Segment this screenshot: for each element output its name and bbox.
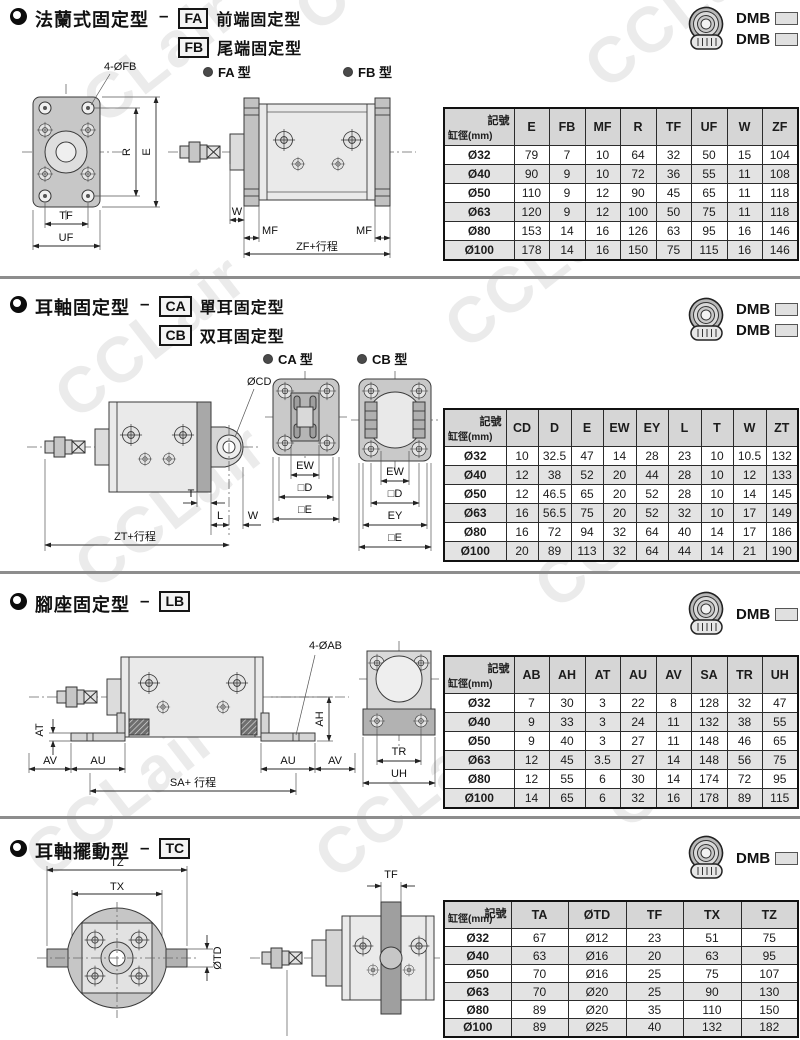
svg-text:□D: □D	[388, 488, 403, 500]
model-code: DMBCB	[736, 322, 800, 339]
col-header-EY: EY	[636, 409, 668, 447]
model-code: DMBLB	[736, 606, 800, 623]
value-cell: 9	[549, 184, 585, 203]
value-cell: 113	[571, 542, 603, 561]
value-cell: 110	[514, 184, 549, 203]
value-cell: 16	[506, 523, 538, 542]
bore-blank-box	[775, 852, 798, 865]
table-row: Ø10014656321617889115	[444, 789, 798, 808]
value-cell: 12	[585, 184, 620, 203]
value-cell: 30	[620, 770, 656, 789]
col-header-W: W	[727, 108, 762, 146]
model-code: DMBFB	[736, 31, 800, 48]
value-cell: 47	[762, 694, 798, 713]
col-header-UH: UH	[762, 656, 798, 694]
value-cell: 33	[549, 713, 585, 732]
section-title: 腳座固定型	[35, 591, 130, 617]
svg-text:AH: AH	[314, 711, 326, 726]
value-cell: 24	[620, 713, 656, 732]
table-row: Ø501246.5652052281014145	[444, 485, 798, 504]
value-cell: 100	[620, 203, 656, 222]
value-cell: 12	[514, 770, 549, 789]
col-header-CD: CD	[506, 409, 538, 447]
value-cell: 118	[762, 203, 798, 222]
bore-cell: Ø63	[444, 751, 514, 770]
svg-text:W: W	[248, 510, 259, 522]
section-flange-header: 法蘭式固定型 – FA 前端固定型 FB 尾端固定型	[10, 6, 302, 59]
bore-cell: Ø40	[444, 713, 514, 732]
value-cell: 182	[741, 1019, 798, 1037]
value-cell: 65	[549, 789, 585, 808]
svg-text:FA 型: FA 型	[218, 65, 251, 80]
type-code-box: LB	[159, 591, 190, 612]
table-row: Ø10020891133264441421190	[444, 542, 798, 561]
bore-cell: Ø32	[444, 694, 514, 713]
bore-blank-box	[775, 303, 798, 316]
table-row: Ø801531416126639516146	[444, 222, 798, 241]
value-cell: 32	[603, 542, 636, 561]
value-cell: 12	[506, 466, 538, 485]
section-divider	[0, 571, 800, 574]
value-cell: 148	[691, 751, 727, 770]
value-cell: 3.5	[585, 751, 620, 770]
title-dash: –	[140, 294, 149, 314]
value-cell: 44	[636, 466, 668, 485]
col-header-TZ: TZ	[741, 901, 798, 929]
section-bullet-icon	[10, 296, 27, 313]
value-cell: 6	[585, 789, 620, 808]
value-cell: 28	[668, 485, 701, 504]
section-divider	[0, 816, 800, 819]
value-cell: 45	[656, 184, 691, 203]
model-code: DMBTC	[736, 850, 800, 867]
table-corner-cell: 記號缸徑(mm)	[444, 108, 514, 146]
section-bullet-icon	[10, 8, 27, 25]
table-row: Ø63120912100507511118	[444, 203, 798, 222]
value-cell: 89	[511, 1001, 568, 1019]
value-cell: 10	[506, 447, 538, 466]
svg-text:TX: TX	[110, 881, 125, 893]
value-cell: 79	[514, 146, 549, 165]
value-cell: 89	[511, 1019, 568, 1037]
value-cell: 27	[620, 732, 656, 751]
value-cell: 118	[762, 184, 798, 203]
value-cell: 20	[603, 504, 636, 523]
value-cell: 16	[585, 241, 620, 260]
value-cell: 75	[571, 504, 603, 523]
bore-cell: Ø100	[444, 789, 514, 808]
value-cell: 12	[514, 751, 549, 770]
value-cell: 72	[727, 770, 762, 789]
value-cell: 56	[727, 751, 762, 770]
value-cell: 16	[727, 241, 762, 260]
table-row: Ø10017814161507511516146	[444, 241, 798, 260]
corner-label-top: 記號	[488, 660, 510, 676]
value-cell: 130	[741, 983, 798, 1001]
section-title: 耳軸固定型	[35, 294, 130, 320]
svg-text:ZT+行程: ZT+行程	[114, 530, 156, 543]
value-cell: 153	[514, 222, 549, 241]
type-code-box: CB	[159, 325, 191, 346]
table-row: Ø801255630141747295	[444, 770, 798, 789]
value-cell: 38	[727, 713, 762, 732]
value-cell: 20	[603, 466, 636, 485]
value-cell: 148	[691, 732, 727, 751]
svg-text:R: R	[121, 148, 133, 156]
col-header-TX: TX	[683, 901, 741, 929]
value-cell: 11	[727, 165, 762, 184]
svg-text:AU: AU	[90, 755, 105, 767]
value-cell: 40	[549, 732, 585, 751]
model-code-block: DMBCA DMBCB	[684, 296, 800, 344]
value-cell: 174	[691, 770, 727, 789]
col-header-TF: TF	[656, 108, 691, 146]
value-cell: 67	[511, 929, 568, 947]
table-corner-cell: 記號缸徑(mm)	[444, 409, 506, 447]
value-cell: 115	[762, 789, 798, 808]
table-row: Ø3273032281283247	[444, 694, 798, 713]
value-cell: 64	[636, 523, 668, 542]
value-cell: 11	[727, 184, 762, 203]
table-row: Ø327971064325015104	[444, 146, 798, 165]
model-code-block: DMBFA DMBFB	[684, 5, 800, 53]
type-code-box: FA	[178, 8, 208, 29]
foot-dimension-table: 記號缸徑(mm)ABAHATAUAVSATRUHØ327303228128324…	[443, 655, 797, 809]
table-row: Ø3267Ø12235175	[444, 929, 798, 947]
table-row: Ø5070Ø162575107	[444, 965, 798, 983]
col-header-MF: MF	[585, 108, 620, 146]
svg-text:□E: □E	[388, 532, 402, 544]
model-code: DMBFA	[736, 10, 800, 27]
table-row: Ø40933324111323855	[444, 713, 798, 732]
value-cell: 72	[538, 523, 571, 542]
bore-cell: Ø50	[444, 732, 514, 751]
value-cell: 20	[506, 542, 538, 561]
value-cell: 178	[514, 241, 549, 260]
value-cell: 32	[727, 694, 762, 713]
flange-mounting-diagram: FA 型 FB 型 4-ØFB R E TF UF	[18, 58, 438, 265]
value-cell: 52	[571, 466, 603, 485]
value-cell: 10	[701, 504, 733, 523]
value-cell: 7	[514, 694, 549, 713]
value-cell: 64	[636, 542, 668, 561]
value-cell: 120	[514, 203, 549, 222]
value-cell: 55	[549, 770, 585, 789]
value-cell: 25	[626, 965, 683, 983]
col-header-TA: TA	[511, 901, 568, 929]
svg-text:AV: AV	[328, 755, 343, 767]
section-bullet-icon	[10, 840, 27, 857]
section-foot-header: 腳座固定型 – LB	[10, 591, 198, 617]
bore-cell: Ø32	[444, 929, 511, 947]
value-cell: 55	[762, 713, 798, 732]
value-cell: 45	[549, 751, 585, 770]
value-cell: 10	[701, 466, 733, 485]
col-header-ZT: ZT	[766, 409, 798, 447]
table-corner-cell: 記號缸徑(mm)	[444, 901, 511, 929]
value-cell: 90	[514, 165, 549, 184]
col-header-EW: EW	[603, 409, 636, 447]
value-cell: 47	[571, 447, 603, 466]
bore-cell: Ø40	[444, 466, 506, 485]
value-cell: 14	[656, 770, 691, 789]
bore-cell: Ø63	[444, 504, 506, 523]
table-row: Ø8089Ø2035110150	[444, 1001, 798, 1019]
value-cell: 40	[668, 523, 701, 542]
value-cell: 38	[538, 466, 571, 485]
svg-text:TF: TF	[59, 210, 73, 222]
bore-cell: Ø100	[444, 241, 514, 260]
col-header-AU: AU	[620, 656, 656, 694]
table-row: Ø10089Ø2540132182	[444, 1019, 798, 1037]
model-code-block: DMBLB	[684, 590, 800, 638]
value-cell: 25	[626, 983, 683, 1001]
bore-cell: Ø32	[444, 146, 514, 165]
bore-cell: Ø32	[444, 447, 506, 466]
bore-cell: Ø50	[444, 184, 514, 203]
value-cell: 65	[762, 732, 798, 751]
clevis-dimension-table-grid: 記號缸徑(mm)CDDEEWEYLTWZTØ321032.54714282310…	[443, 408, 799, 562]
svg-text:L: L	[217, 510, 223, 522]
svg-text:ØCD: ØCD	[247, 376, 272, 388]
value-cell: 9	[514, 732, 549, 751]
value-cell: 75	[683, 965, 741, 983]
table-row: Ø401238522044281012133	[444, 466, 798, 485]
value-cell: 8	[656, 694, 691, 713]
value-cell: 14	[733, 485, 766, 504]
svg-text:4-ØAB: 4-ØAB	[309, 640, 342, 652]
value-cell: 132	[683, 1019, 741, 1037]
value-cell: 89	[727, 789, 762, 808]
value-cell: 89	[538, 542, 571, 561]
value-cell: 128	[691, 694, 727, 713]
svg-text:CA 型: CA 型	[278, 352, 313, 367]
col-header-E: E	[571, 409, 603, 447]
table-row: Ø6312453.527141485675	[444, 751, 798, 770]
value-cell: Ø25	[568, 1019, 626, 1037]
value-cell: 94	[571, 523, 603, 542]
title-dash: –	[140, 591, 149, 611]
col-header-AT: AT	[585, 656, 620, 694]
svg-text:SA+ 行程: SA+ 行程	[170, 776, 216, 789]
value-cell: Ø16	[568, 965, 626, 983]
value-cell: 50	[656, 203, 691, 222]
table-row: Ø801672943264401417186	[444, 523, 798, 542]
bore-cell: Ø63	[444, 983, 511, 1001]
value-cell: 132	[766, 447, 798, 466]
value-cell: 14	[701, 542, 733, 561]
bore-cell: Ø80	[444, 523, 506, 542]
foot-dimension-table-grid: 記號缸徑(mm)ABAHATAUAVSATRUHØ327303228128324…	[443, 655, 799, 809]
value-cell: 51	[683, 929, 741, 947]
col-header-AB: AB	[514, 656, 549, 694]
value-cell: 150	[620, 241, 656, 260]
type-desc: 單耳固定型	[200, 294, 285, 318]
table-row: Ø321032.5471428231010.5132	[444, 447, 798, 466]
section-divider	[0, 276, 800, 279]
value-cell: 32	[656, 146, 691, 165]
value-cell: 70	[511, 983, 568, 1001]
svg-text:EW: EW	[296, 460, 314, 472]
value-cell: 10	[701, 447, 733, 466]
value-cell: 7	[549, 146, 585, 165]
value-cell: 46.5	[538, 485, 571, 504]
flange-dimension-table: 記號缸徑(mm)EFBMFRTFUFWZFØ327971064325015104…	[443, 107, 797, 261]
value-cell: 75	[741, 929, 798, 947]
bore-cell: Ø100	[444, 1019, 511, 1037]
col-header-SA: SA	[691, 656, 727, 694]
value-cell: 14	[603, 447, 636, 466]
value-cell: 95	[762, 770, 798, 789]
corner-label-bottom: 缸徑(mm)	[448, 127, 492, 142]
value-cell: 16	[727, 222, 762, 241]
value-cell: 12	[733, 466, 766, 485]
value-cell: 50	[691, 146, 727, 165]
col-header-W: W	[733, 409, 766, 447]
value-cell: Ø20	[568, 1001, 626, 1019]
type-desc: 尾端固定型	[217, 35, 302, 59]
value-cell: 12	[585, 203, 620, 222]
trunnion-dimension-table: 記號缸徑(mm)TAØTDTFTXTZØ3267Ø12235175Ø4063Ø1…	[443, 900, 797, 1038]
svg-text:W: W	[232, 206, 243, 218]
col-header-AH: AH	[549, 656, 585, 694]
svg-text:FB 型: FB 型	[358, 65, 392, 80]
col-header-E: E	[514, 108, 549, 146]
col-header-R: R	[620, 108, 656, 146]
section-clevis-header: 耳軸固定型 – CA 單耳固定型 CB 双耳固定型	[10, 294, 285, 347]
value-cell: 65	[691, 184, 727, 203]
value-cell: 56.5	[538, 504, 571, 523]
value-cell: 10	[585, 146, 620, 165]
bore-blank-box	[775, 33, 798, 46]
table-row: Ø50940327111484665	[444, 732, 798, 751]
value-cell: 32	[603, 523, 636, 542]
cylinder-icon	[684, 834, 730, 882]
value-cell: 52	[636, 504, 668, 523]
value-cell: 115	[691, 241, 727, 260]
value-cell: 3	[585, 732, 620, 751]
value-cell: 63	[511, 947, 568, 965]
table-corner-cell: 記號缸徑(mm)	[444, 656, 514, 694]
svg-text:TF: TF	[384, 869, 398, 881]
value-cell: 90	[620, 184, 656, 203]
value-cell: 12	[506, 485, 538, 504]
trunnion-mounting-diagram: TZ TX ØTD TF	[15, 856, 443, 1038]
title-dash: –	[159, 6, 168, 26]
bore-cell: Ø80	[444, 222, 514, 241]
value-cell: 17	[733, 504, 766, 523]
value-cell: 63	[656, 222, 691, 241]
svg-text:AT: AT	[34, 723, 46, 737]
value-cell: 10	[585, 165, 620, 184]
cylinder-icon	[684, 590, 730, 638]
value-cell: 16	[585, 222, 620, 241]
value-cell: 28	[636, 447, 668, 466]
table-row: Ø4063Ø16206395	[444, 947, 798, 965]
value-cell: 146	[762, 241, 798, 260]
corner-label-top: 記號	[480, 413, 502, 429]
type-desc: 前端固定型	[216, 6, 301, 30]
col-header-TF: TF	[626, 901, 683, 929]
col-header-T: T	[701, 409, 733, 447]
value-cell: 104	[762, 146, 798, 165]
bore-cell: Ø40	[444, 165, 514, 184]
value-cell: 11	[727, 203, 762, 222]
bore-blank-box	[775, 324, 798, 337]
corner-label-bottom: 缸徑(mm)	[448, 428, 492, 443]
value-cell: 110	[683, 1001, 741, 1019]
title-dash: –	[140, 838, 149, 858]
value-cell: 32.5	[538, 447, 571, 466]
value-cell: 36	[656, 165, 691, 184]
bore-cell: Ø40	[444, 947, 511, 965]
value-cell: 46	[727, 732, 762, 751]
value-cell: 40	[626, 1019, 683, 1037]
value-cell: 178	[691, 789, 727, 808]
value-cell: 11	[656, 732, 691, 751]
value-cell: 11	[656, 713, 691, 732]
svg-text:E: E	[141, 148, 153, 155]
cylinder-icon	[684, 296, 730, 344]
svg-text:UF: UF	[59, 232, 74, 244]
value-cell: 132	[691, 713, 727, 732]
table-row: Ø6370Ø202590130	[444, 983, 798, 1001]
svg-text:ØTD: ØTD	[212, 946, 224, 969]
value-cell: 27	[620, 751, 656, 770]
value-cell: Ø20	[568, 983, 626, 1001]
value-cell: 95	[691, 222, 727, 241]
value-cell: 21	[733, 542, 766, 561]
value-cell: 30	[549, 694, 585, 713]
section-bullet-icon	[10, 593, 27, 610]
value-cell: 145	[766, 485, 798, 504]
model-code-block: DMBTC	[684, 834, 800, 882]
value-cell: 146	[762, 222, 798, 241]
value-cell: 75	[691, 203, 727, 222]
svg-text:ZF+行程: ZF+行程	[296, 240, 338, 253]
corner-label-bottom: 缸徑(mm)	[448, 675, 492, 690]
value-cell: 32	[668, 504, 701, 523]
flange-dimension-table-grid: 記號缸徑(mm)EFBMFRTFUFWZFØ327971064325015104…	[443, 107, 799, 261]
svg-text:AU: AU	[280, 755, 295, 767]
value-cell: 133	[766, 466, 798, 485]
col-header-AV: AV	[656, 656, 691, 694]
foot-mounting-diagram: 4-ØAB AH AT AV AU AU AV SA+ 行程 TR	[15, 633, 443, 810]
table-row: Ø631656.5752052321017149	[444, 504, 798, 523]
value-cell: 108	[762, 165, 798, 184]
value-cell: 3	[585, 713, 620, 732]
bore-cell: Ø80	[444, 1001, 511, 1019]
cylinder-icon	[684, 5, 730, 53]
model-code: DMBCA	[736, 301, 800, 318]
value-cell: 14	[656, 751, 691, 770]
svg-text:CB 型: CB 型	[372, 352, 407, 367]
value-cell: 107	[741, 965, 798, 983]
svg-text:EW: EW	[386, 466, 404, 478]
value-cell: 3	[585, 694, 620, 713]
value-cell: 23	[668, 447, 701, 466]
svg-text:T: T	[188, 488, 195, 500]
value-cell: 149	[766, 504, 798, 523]
svg-text:TZ: TZ	[110, 857, 124, 869]
value-cell: 10	[701, 485, 733, 504]
svg-text:□E: □E	[298, 504, 312, 516]
value-cell: 70	[511, 965, 568, 983]
value-cell: 64	[620, 146, 656, 165]
value-cell: 10.5	[733, 447, 766, 466]
value-cell: 28	[668, 466, 701, 485]
value-cell: 17	[733, 523, 766, 542]
